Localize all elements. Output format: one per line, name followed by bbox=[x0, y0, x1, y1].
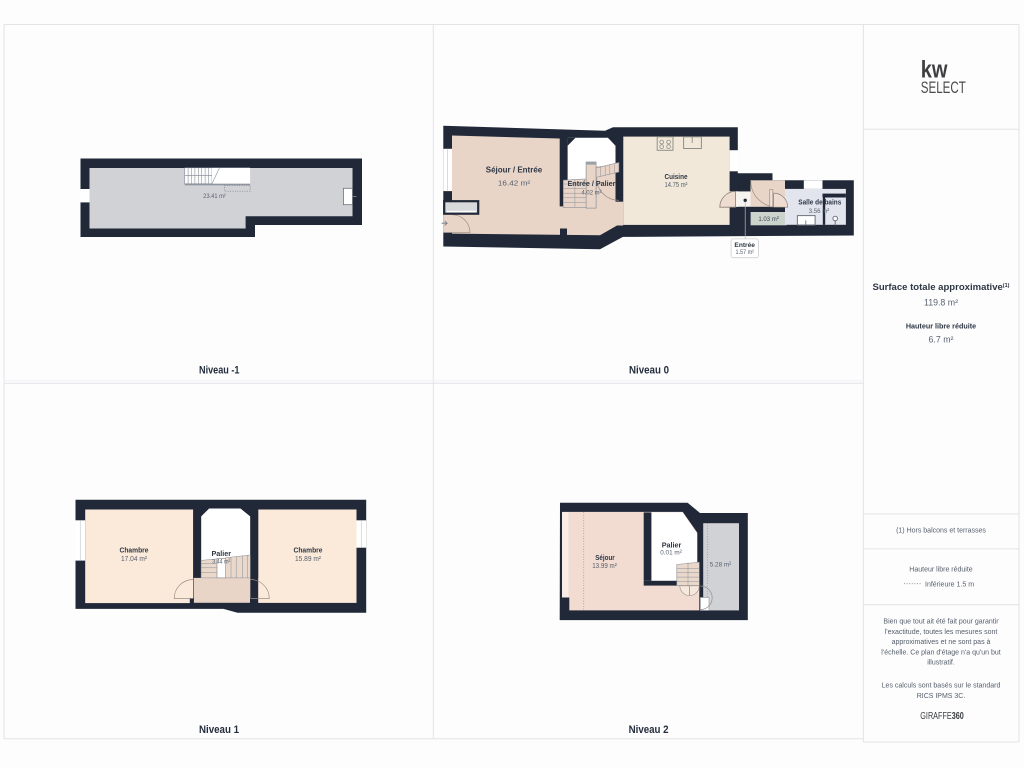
svg-text:Hauteur libre réduite: Hauteur libre réduite bbox=[906, 321, 976, 330]
svg-text:3.56 m²: 3.56 m² bbox=[809, 208, 830, 215]
svg-text:Niveau -1: Niveau -1 bbox=[199, 365, 240, 377]
svg-text:l'exactitude, toutes les mesur: l'exactitude, toutes les mesures sont bbox=[885, 629, 998, 636]
svg-text:Niveau 1: Niveau 1 bbox=[199, 724, 239, 736]
svg-text:Palier: Palier bbox=[212, 549, 232, 558]
svg-text:17.04 m²: 17.04 m² bbox=[121, 556, 148, 563]
svg-text:5.28 m²: 5.28 m² bbox=[710, 562, 732, 569]
svg-text:Entrée / Palier: Entrée / Palier bbox=[568, 179, 616, 188]
svg-text:14.75 m²: 14.75 m² bbox=[665, 182, 689, 189]
svg-text:Palier: Palier bbox=[662, 541, 682, 550]
svg-text:Inférieure 1.5 m: Inférieure 1.5 m bbox=[925, 581, 974, 588]
svg-text:Surface totale approximative(1: Surface totale approximative(1) bbox=[873, 282, 1010, 293]
svg-text:119.8 m²: 119.8 m² bbox=[924, 298, 958, 308]
svg-text:Cuisine: Cuisine bbox=[665, 172, 688, 181]
svg-text:Bien que tout ait été fait pou: Bien que tout ait été fait pour garantir bbox=[883, 619, 999, 626]
svg-text:1.03 m²: 1.03 m² bbox=[758, 216, 779, 223]
svg-text:23.41 m²: 23.41 m² bbox=[203, 193, 226, 200]
svg-text:4.02 m²: 4.02 m² bbox=[582, 190, 603, 197]
svg-text:Séjour / Entrée: Séjour / Entrée bbox=[486, 166, 543, 175]
svg-text:6.7 m²: 6.7 m² bbox=[929, 335, 954, 345]
svg-text:15.89 m²: 15.89 m² bbox=[295, 556, 322, 563]
svg-text:16.42 m²: 16.42 m² bbox=[498, 179, 531, 188]
svg-text:Les calculs sont basés sur le: Les calculs sont basés sur le standard bbox=[882, 683, 1001, 690]
svg-text:l'échelle. Ce plan d'étage n'a: l'échelle. Ce plan d'étage n'a qu'un but bbox=[881, 649, 1000, 656]
svg-text:Chambre: Chambre bbox=[294, 545, 323, 554]
svg-text:Salle de bains: Salle de bains bbox=[798, 199, 841, 206]
svg-text:illustratif.: illustratif. bbox=[927, 660, 955, 667]
svg-text:1.57 m²: 1.57 m² bbox=[735, 249, 754, 256]
svg-text:SELECT: SELECT bbox=[921, 79, 966, 97]
svg-text:Niveau 2: Niveau 2 bbox=[629, 724, 669, 736]
svg-text:RICS IPMS 3C.: RICS IPMS 3C. bbox=[917, 693, 966, 700]
svg-text:Niveau 0: Niveau 0 bbox=[629, 365, 669, 377]
svg-text:3.44 m²: 3.44 m² bbox=[212, 559, 231, 566]
svg-text:GIRAFFE360: GIRAFFE360 bbox=[920, 711, 964, 722]
svg-text:Entrée: Entrée bbox=[734, 242, 755, 249]
svg-text:Hauteur libre réduite: Hauteur libre réduite bbox=[909, 567, 973, 574]
svg-text:13.99 m²: 13.99 m² bbox=[592, 563, 617, 570]
svg-text:Chambre: Chambre bbox=[120, 545, 149, 554]
svg-text:Séjour: Séjour bbox=[595, 553, 615, 562]
svg-text:(1) Hors balcons et terrasses: (1) Hors balcons et terrasses bbox=[896, 528, 986, 535]
svg-text:0.01 m²: 0.01 m² bbox=[660, 549, 682, 556]
svg-text:approximatives et ne sont pas: approximatives et ne sont pas à bbox=[892, 639, 991, 646]
